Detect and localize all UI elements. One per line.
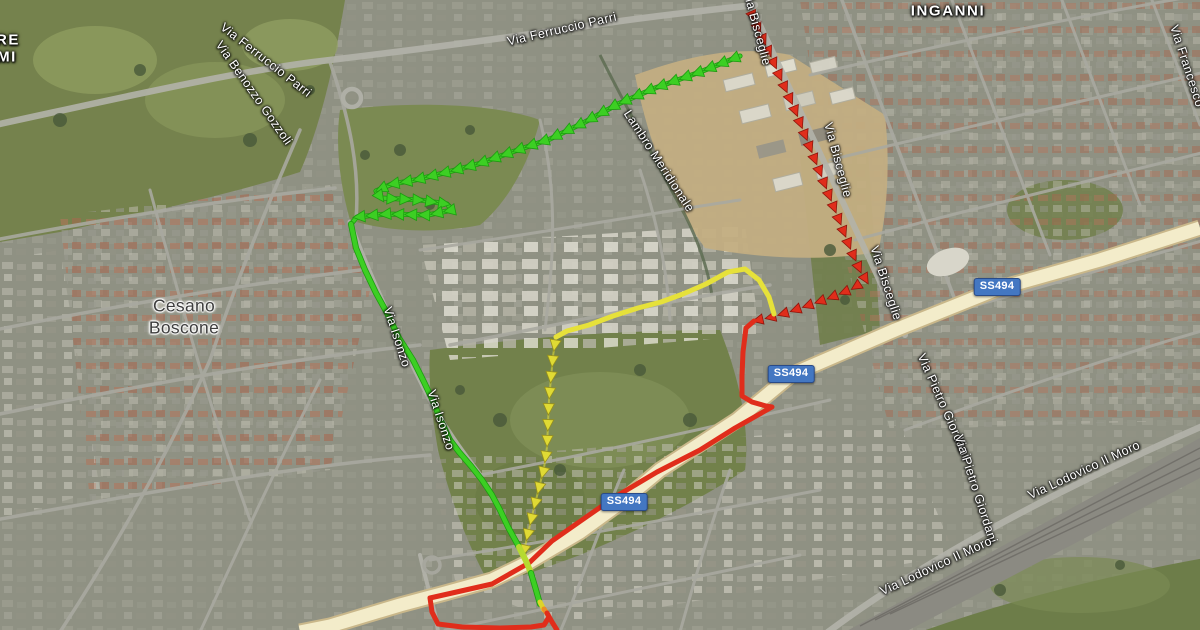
map-viewport[interactable]: Via Ferruccio ParriVia Ferruccio ParriVi… — [0, 0, 1200, 630]
satellite-base — [0, 0, 1200, 630]
